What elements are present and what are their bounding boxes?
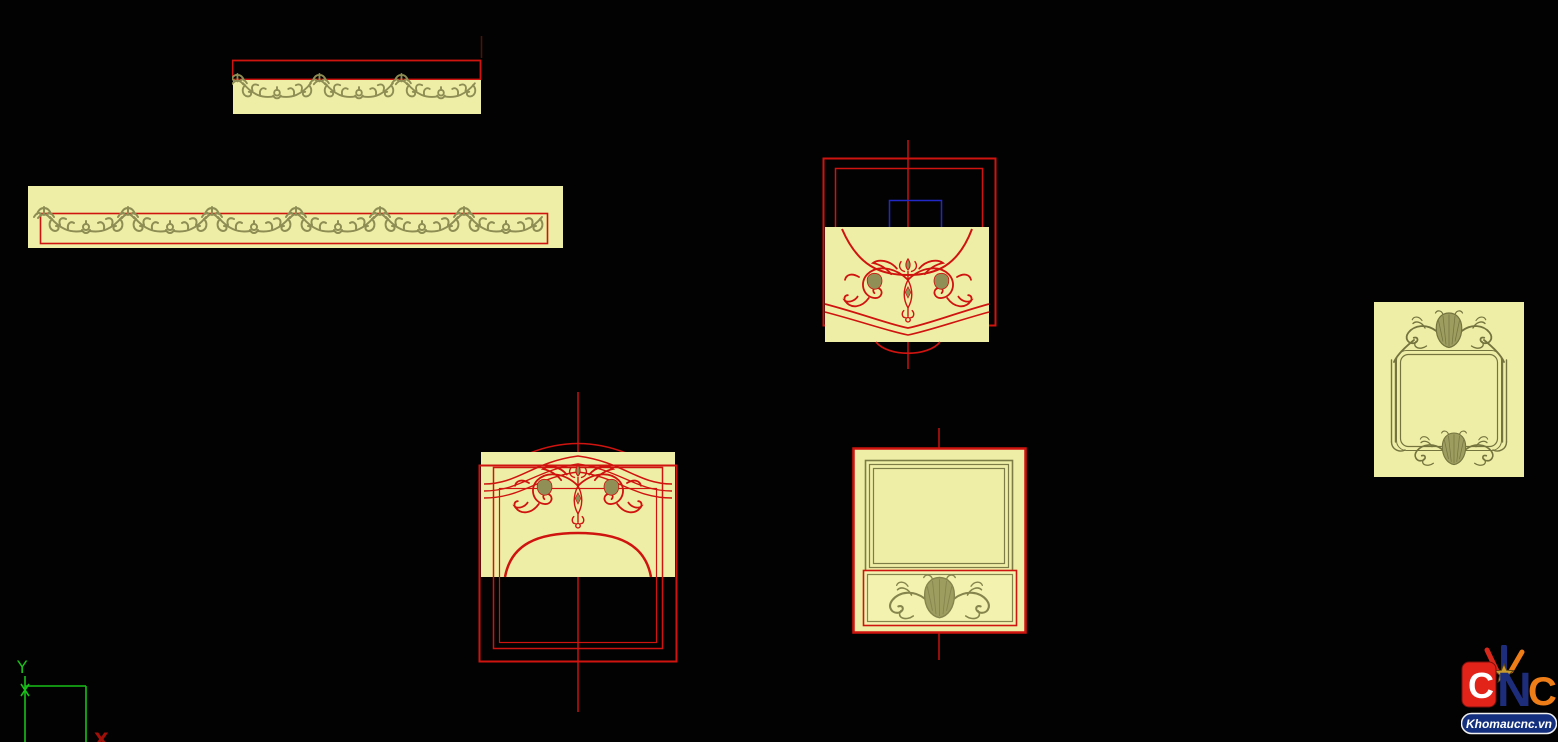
square-frame-panel[interactable] bbox=[850, 428, 1030, 662]
logo-site-text: Khomaucnc.vn bbox=[1466, 717, 1552, 731]
panel-blank[interactable] bbox=[28, 186, 563, 248]
ucs-x-label: X bbox=[94, 729, 109, 742]
logo-letter-c1: C bbox=[1468, 665, 1494, 706]
headboard-panel[interactable] bbox=[478, 392, 682, 714]
mirror-frame-panel[interactable] bbox=[1374, 302, 1524, 477]
ucs-axis-lines bbox=[21, 676, 86, 742]
toolpath-outline-rect[interactable] bbox=[233, 61, 481, 80]
cad-viewport[interactable]: Y X C N C Khomaucnc.vn bbox=[0, 0, 1558, 742]
ucs-y-label: Y bbox=[16, 658, 28, 678]
carved-strip-small[interactable] bbox=[232, 36, 484, 116]
watermark-logo: C N C Khomaucnc.vn bbox=[1461, 645, 1557, 735]
carved-strip-large[interactable] bbox=[28, 186, 563, 249]
ucs-axis-icon: Y X bbox=[8, 654, 138, 742]
logo-letter-c2: C bbox=[1528, 670, 1557, 714]
curved-apron-panel[interactable] bbox=[818, 138, 1004, 372]
logo-letter-n: N bbox=[1497, 664, 1532, 717]
